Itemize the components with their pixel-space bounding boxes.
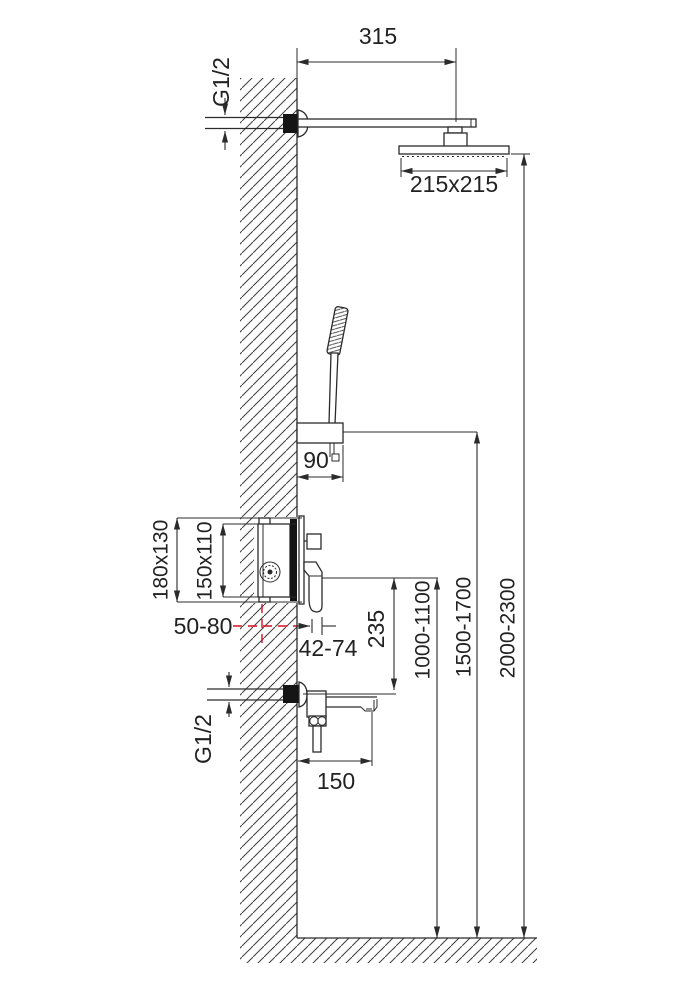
dim-valve-inner-label: 150x110	[193, 521, 216, 600]
dim-valve-height: 1000-1100	[411, 578, 437, 938]
dim-valve-height-label: 1000-1100	[411, 581, 434, 680]
mixer-handle	[304, 562, 322, 612]
dim-bottom-thread: G1/2	[190, 672, 229, 764]
dim-top-thread: G1/2	[208, 57, 234, 150]
dim-head-height-label: 2000-2300	[496, 578, 519, 678]
dim-head-size-label: 215x215	[410, 171, 498, 197]
ball-joint	[448, 127, 462, 133]
hand-shower-handle	[327, 306, 349, 356]
bottom-thread-label: G1/2	[190, 714, 216, 764]
hose-connector	[332, 454, 339, 461]
dim-valve-to-spout-label: 235	[363, 610, 389, 648]
dim-head-size: 215x215	[401, 158, 507, 197]
dim-head-height: 2000-2300	[496, 154, 530, 938]
dim-holder-width: 90	[297, 445, 343, 482]
dim-arm-length-label: 315	[359, 23, 397, 49]
shower-arm	[298, 119, 476, 127]
rain-shower-head	[399, 146, 509, 154]
spout-tailpiece	[313, 726, 321, 752]
dim-valve-outer-label: 180x130	[149, 520, 172, 601]
top-thread-label: G1/2	[208, 57, 234, 107]
dim-trim-depth-label: 42-74	[299, 635, 358, 661]
dim-arm-length: 315	[297, 23, 456, 122]
drawing-canvas: 315 G1/2 215x215 90 180x130 150x110 50-8…	[0, 0, 688, 1000]
spout-body	[307, 691, 326, 717]
diverter-knob	[307, 534, 321, 549]
dim-spout-length-label: 150	[317, 768, 355, 794]
trim-plate	[299, 516, 304, 604]
dim-holder-height: 1500-1700	[343, 432, 477, 938]
dim-holder-height-label: 1500-1700	[452, 577, 475, 677]
concealed-mixer-valve	[254, 516, 322, 612]
hand-shower	[297, 306, 348, 461]
valve-body-edge	[290, 519, 297, 601]
hand-shower-holder	[297, 423, 343, 443]
wall-fitting-top	[283, 114, 298, 133]
shower-installation-diagram: 315 G1/2 215x215 90 180x130 150x110 50-8…	[0, 0, 688, 1000]
dim-trim-depth: 42-74	[296, 617, 358, 661]
hand-shower-neck	[329, 353, 338, 424]
dim-holder-width-label: 90	[303, 447, 329, 473]
dim-embed-depth-label: 50-80	[174, 613, 233, 639]
wall-fitting-bottom	[283, 685, 299, 703]
